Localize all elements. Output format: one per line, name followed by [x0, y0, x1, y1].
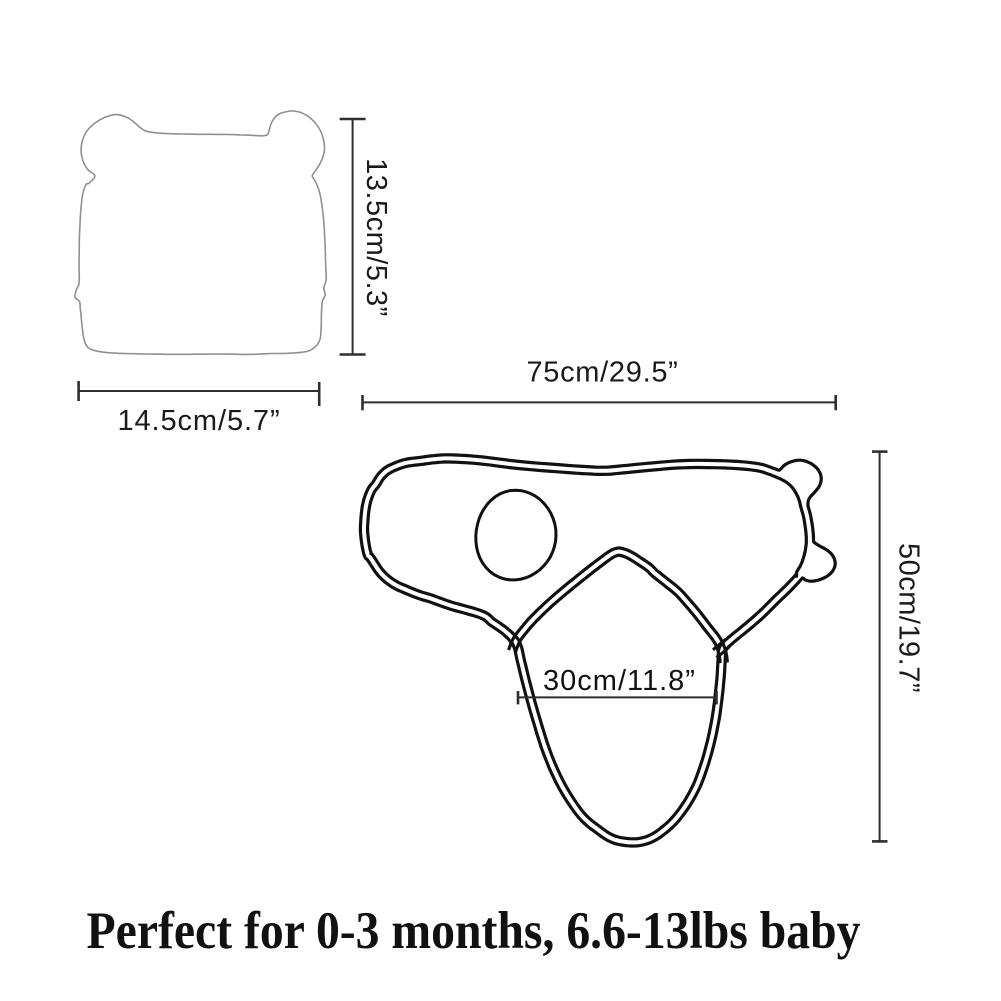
svg-text:14.5cm/5.7”: 14.5cm/5.7”: [117, 405, 280, 437]
svg-text:Perfect for 0-3 months, 6.6-13: Perfect for 0-3 months, 6.6-13lbs baby: [87, 900, 861, 959]
svg-text:75cm/29.5”: 75cm/29.5”: [526, 357, 678, 389]
svg-text:13.5cm/5.3”: 13.5cm/5.3”: [360, 158, 392, 317]
svg-text:50cm/19.7”: 50cm/19.7”: [893, 543, 925, 693]
svg-text:30cm/11.8”: 30cm/11.8”: [543, 665, 696, 697]
